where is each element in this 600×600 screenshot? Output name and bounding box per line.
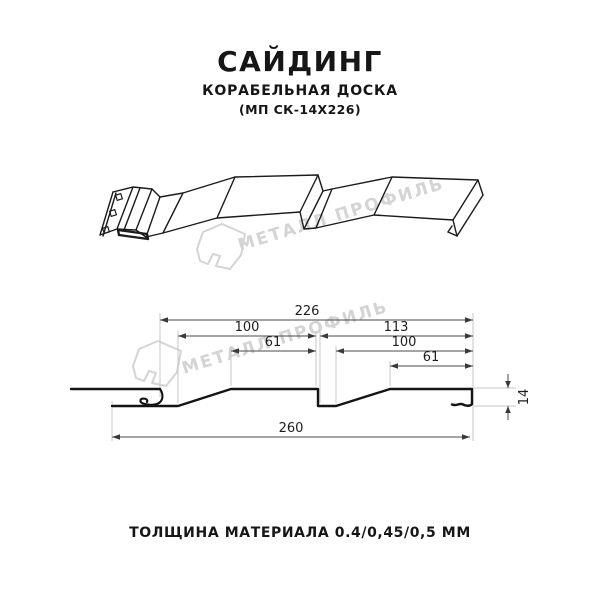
dim-label-100-right: 100 bbox=[392, 335, 417, 350]
section-profile bbox=[71, 389, 472, 406]
watermark-brand-text: МЕТАЛЛ ПРОФИЛЬ bbox=[180, 297, 391, 379]
dimension-260: 260 bbox=[112, 421, 470, 440]
dim-label-260: 260 bbox=[279, 421, 304, 436]
dimension-14: 14 bbox=[505, 374, 532, 420]
product-diagram-page: САЙДИНГ КОРАБЕЛЬНАЯ ДОСКА (МП СК-14Х226)… bbox=[0, 0, 600, 600]
technical-drawing-canvas: МЕТАЛЛ ПРОФИЛЬ bbox=[0, 0, 600, 600]
dim-label-61-right: 61 bbox=[423, 350, 440, 365]
dimension-100-right: 100 bbox=[336, 335, 473, 354]
dimension-61-right: 61 bbox=[390, 350, 473, 369]
lock-hem-fold bbox=[118, 230, 148, 239]
panel-profile-path bbox=[112, 389, 472, 406]
dimension-226: 226 bbox=[160, 304, 473, 323]
dim-label-113: 113 bbox=[384, 320, 409, 335]
panel-end-fold bbox=[448, 220, 457, 236]
nail-strip-holes bbox=[103, 194, 123, 234]
left-lock-curl bbox=[140, 389, 162, 405]
dim-label-14: 14 bbox=[517, 389, 532, 406]
material-thickness-label: ТОЛЩИНА МАТЕРИАЛА 0.4/0,45/0,5 ММ bbox=[0, 525, 600, 541]
dim-label-61-left: 61 bbox=[265, 335, 282, 350]
watermark-bottom: МЕТАЛЛ ПРОФИЛЬ bbox=[133, 297, 391, 386]
brand-logo-icon bbox=[133, 341, 181, 386]
dim-label-226: 226 bbox=[295, 304, 320, 319]
dim-label-100-left: 100 bbox=[235, 320, 260, 335]
